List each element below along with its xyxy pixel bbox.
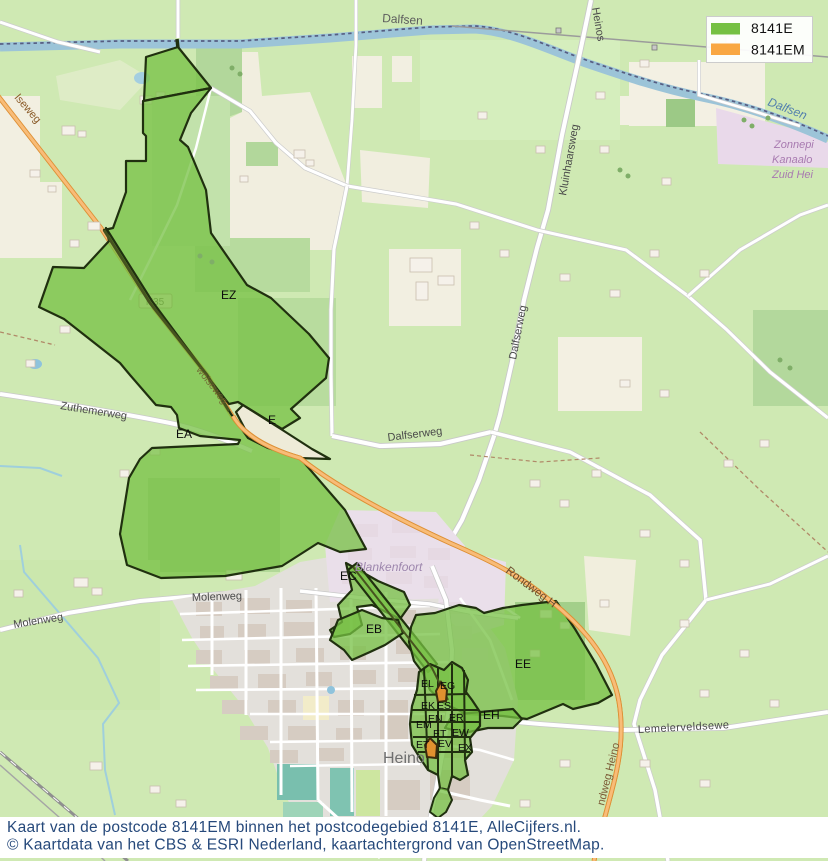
svg-text:EL: EL	[421, 678, 434, 690]
svg-text:EW: EW	[452, 727, 469, 739]
svg-text:EE: EE	[515, 657, 531, 671]
svg-text:EM: EM	[416, 719, 432, 731]
svg-text:EB: EB	[366, 622, 382, 636]
svg-text:ET: ET	[416, 739, 430, 751]
svg-text:Zonnepi: Zonnepi	[773, 139, 814, 151]
svg-text:Molenweg: Molenweg	[192, 590, 243, 604]
svg-text:EG: EG	[440, 680, 455, 692]
svg-text:EZ: EZ	[221, 288, 236, 302]
svg-text:Blankenfoort: Blankenfoort	[355, 560, 423, 574]
svg-text:E: E	[268, 413, 276, 427]
svg-text:© Kaartdata van het CBS & ESRI: © Kaartdata van het CBS & ESRI Nederland…	[7, 837, 605, 854]
svg-text:EA: EA	[176, 427, 192, 441]
svg-text:8141E: 8141E	[751, 20, 793, 36]
svg-text:EH: EH	[483, 708, 500, 722]
svg-text:EK: EK	[421, 700, 435, 712]
svg-text:EX: EX	[458, 742, 472, 754]
svg-text:EC: EC	[340, 569, 357, 583]
svg-text:Kaart van de postcode 8141EM b: Kaart van de postcode 8141EM binnen het …	[7, 819, 581, 836]
svg-text:ER: ER	[449, 712, 464, 724]
svg-text:ES: ES	[437, 700, 451, 712]
svg-text:Zuid Hei: Zuid Hei	[771, 169, 814, 181]
svg-text:Kanaalo: Kanaalo	[772, 154, 812, 166]
svg-text:EV: EV	[438, 738, 452, 750]
svg-text:8141EM: 8141EM	[751, 42, 805, 58]
svg-text:Heino: Heino	[383, 750, 425, 767]
svg-text:Dalfsen: Dalfsen	[382, 11, 424, 28]
